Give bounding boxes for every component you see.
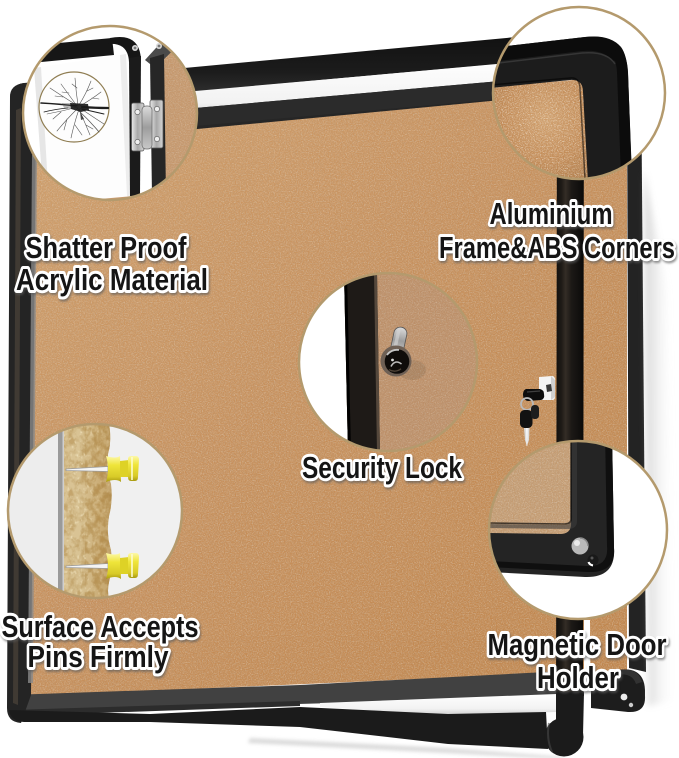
svg-text:Magnetic Door: Magnetic Door <box>488 627 667 662</box>
svg-text:Holder: Holder <box>537 660 619 695</box>
svg-text:Security Lock: Security Lock <box>302 450 463 485</box>
svg-text:Acrylic Material: Acrylic Material <box>16 262 208 297</box>
svg-text:Shatter Proof: Shatter Proof <box>26 230 188 265</box>
svg-text:Frame&ABS Corners: Frame&ABS Corners <box>439 230 675 265</box>
svg-text:Aluminium: Aluminium <box>490 196 613 231</box>
svg-text:Pins Firmly: Pins Firmly <box>28 639 170 674</box>
